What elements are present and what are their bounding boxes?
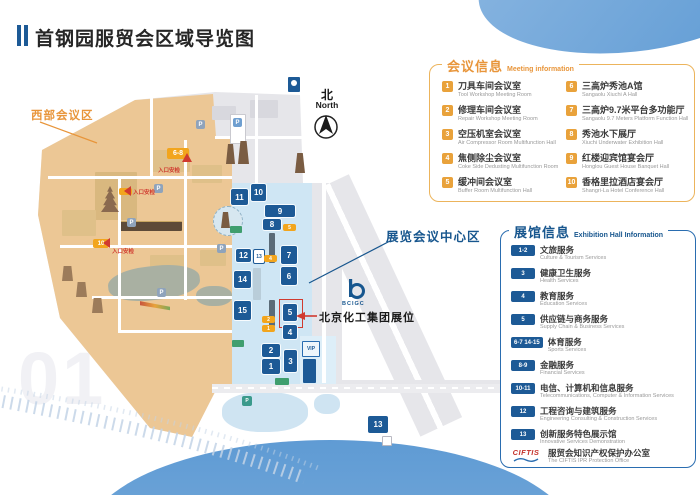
hall-3: 3 <box>284 350 297 372</box>
hall-1: 1 <box>262 359 280 374</box>
west-area-label: 西部会议区 <box>31 107 94 123</box>
meeting-item-cn: 刀具车间会议室 <box>458 81 532 92</box>
map-road <box>215 136 303 139</box>
meeting-item-cn: 三高炉9.7米平台多功能厅 <box>582 105 688 116</box>
page: 01 首钢园服贸会区域导览图 11 10 9 8 7 6 12 13 14 <box>0 0 700 495</box>
parking-icon: P <box>217 244 226 253</box>
north-label-en: North <box>310 100 344 110</box>
building-block <box>62 210 96 236</box>
meeting-item-en: Sangaolu 9.7 Meters Platform Function Ha… <box>582 116 688 123</box>
hall-info-en: Education Services <box>540 301 587 308</box>
green-chip <box>232 340 244 347</box>
hall-info-item: 12 工程咨询与建筑服务 Engineering Consulting & Co… <box>511 406 657 423</box>
south-pond <box>222 392 308 432</box>
meeting-item: 1 刀具车间会议室 Tool Workshop Meeting Room <box>442 81 532 99</box>
meeting-item-number: 3 <box>442 129 453 140</box>
hall-info-number: 1-2 <box>511 245 535 256</box>
entrance-check-label: 入口安检 <box>112 247 134 255</box>
south-pond-small <box>314 394 340 414</box>
meeting-item: 10 香格里拉酒店宴会厅 Shangri-La Hotel Conference… <box>566 177 664 195</box>
meeting-item-en: Xiuchi Underwater Exhibition Hall <box>582 140 663 147</box>
gate-chip-10: 10 <box>93 239 109 248</box>
meeting-item-number: 6 <box>566 81 577 92</box>
hall-2: 2 <box>262 344 280 357</box>
hall-info-item: 10-11 电信、计算机和信息服务 Telecommunications, Co… <box>511 383 674 400</box>
main-road <box>212 384 514 393</box>
map-road <box>322 183 326 383</box>
hall-info-en: Financial Services <box>540 370 585 377</box>
meeting-item-cn: 三高炉秀池A馆 <box>582 81 643 92</box>
hall-info-title: 展馆信息 Exhibition Hall Information <box>509 222 668 241</box>
hall-info-number: 10-11 <box>511 383 535 394</box>
meeting-item: 3 空压机室会议室 Air Compressor Room Multifunct… <box>442 129 556 147</box>
hall-info-cn: 供应链与商务服务 <box>540 314 624 324</box>
map-road <box>118 330 232 333</box>
title-bar-icon <box>17 25 21 46</box>
building-block <box>192 165 222 183</box>
hall-info-item: 8-9 金融服务 Financial Services <box>511 360 585 377</box>
bcigc-logo-text: BCIGC <box>342 301 365 307</box>
parking-icon: P <box>154 184 163 193</box>
meeting-item-en: Honglou Guest House Banquet Hall <box>582 164 669 171</box>
center-area-label: 展览会议中心区 <box>386 226 481 245</box>
cooling-tower-icon <box>92 298 103 313</box>
hall-info-en: Sports Services <box>548 347 587 354</box>
building-block <box>382 436 392 446</box>
meeting-item-number: 8 <box>566 129 577 140</box>
hall-info-en: Telecommunications, Computer & Informati… <box>540 393 674 400</box>
hall-info-number: 6-7 14-15 <box>511 337 543 348</box>
hall-info-en: Innovative Services Demonstration <box>540 439 625 446</box>
green-chip <box>275 378 289 385</box>
hall-13-standalone: 13 <box>368 416 388 433</box>
hall-7: 7 <box>281 246 297 264</box>
meeting-item-cn: 香格里拉酒店宴会厅 <box>582 177 664 188</box>
gate-chip-5: 5 <box>283 224 296 231</box>
hall-12: 12 <box>236 249 251 262</box>
gate-chip-4: 4 <box>264 255 277 262</box>
parking-icon: P <box>196 120 205 129</box>
hall-info-en: Engineering Consulting & Construction Se… <box>540 416 657 423</box>
green-chip <box>230 226 242 233</box>
hall-info-item: 5 供应链与商务服务 Supply Chain & Business Servi… <box>511 314 624 331</box>
hall-info-cn: 体育服务 <box>548 337 587 347</box>
hall-info-en: Health Services <box>540 278 591 285</box>
map-road <box>184 140 187 300</box>
meeting-item: 4 焦侧除尘会议室 Coke Side Dedusting Multifunct… <box>442 153 558 171</box>
meeting-info-panel: 会议信息 Meeting information 1 刀具车间会议室 Tool … <box>429 64 695 202</box>
hall-info-title-cn: 展馆信息 <box>514 222 570 241</box>
hall-info-en: Supply Chain & Business Services <box>540 324 624 331</box>
meeting-item-number: 2 <box>442 105 453 116</box>
meeting-item-number: 5 <box>442 177 453 188</box>
map-road <box>150 98 153 178</box>
ciftis-en: The CIFTIS IPR Protection Office <box>548 458 650 465</box>
cooling-tower-icon <box>62 266 73 281</box>
meeting-item-number: 10 <box>566 177 577 188</box>
hall-info-number: 13 <box>511 429 535 440</box>
hall-8: 8 <box>263 219 281 230</box>
meeting-info-title: 会议信息 Meeting information <box>442 56 579 75</box>
meeting-item-cn: 修理车间会议室 <box>458 105 538 116</box>
hall-info-number: 3 <box>511 268 535 279</box>
hall-info-cn: 文旅服务 <box>540 245 606 255</box>
compass-icon <box>315 116 337 138</box>
map-road <box>48 176 232 179</box>
hall-15: 15 <box>234 301 251 320</box>
meeting-item-number: 1 <box>442 81 453 92</box>
hall-info-number: 5 <box>511 314 535 325</box>
hall-10: 10 <box>251 184 266 201</box>
shougang-logo-badge <box>288 77 300 92</box>
hall-info-item: 1-2 文旅服务 Culture & Tourism Services <box>511 245 606 262</box>
meeting-item-number: 4 <box>442 153 453 164</box>
meeting-item-cn: 缓冲间会议室 <box>458 177 532 188</box>
service-icon-box <box>303 359 316 383</box>
entrance-check-label: 入口安检 <box>158 166 180 174</box>
ciftis-logo-text: CIFTIS <box>513 448 540 457</box>
hall-info-number: 4 <box>511 291 535 302</box>
meeting-info-title-en: Meeting information <box>507 66 574 73</box>
gate-chip-1: 1 <box>262 325 275 332</box>
map-road <box>60 245 232 248</box>
meeting-item-en: Shangri-La Hotel Conference Hall <box>582 188 664 195</box>
hall-info-item: 3 健康卫生服务 Health Services <box>511 268 591 285</box>
hall-14: 14 <box>234 271 251 288</box>
cooling-tower-icon <box>76 282 87 297</box>
meeting-item-en: Tool Workshop Meeting Room <box>458 92 532 99</box>
hall-info-cn: 教育服务 <box>540 291 587 301</box>
gate-chip-6-8: 6-8 <box>167 148 189 159</box>
building-block <box>253 268 261 300</box>
meeting-item: 6 三高炉秀池A馆 Sangaolu Xiuchi A Hall <box>566 81 643 99</box>
meeting-item-cn: 红楼迎宾馆宴会厅 <box>582 153 669 164</box>
parking-icon-teal: P <box>242 396 252 406</box>
hall-info-item: 6-7 14-15 体育服务 Sports Services <box>511 337 586 354</box>
meeting-item-number: 9 <box>566 153 577 164</box>
hall-info-cn: 金融服务 <box>540 360 585 370</box>
meeting-item-en: Air Compressor Room Multifunction Hall <box>458 140 556 147</box>
hall-info-item: 13 创新服务特色展示馆 Innovative Services Demonst… <box>511 429 625 446</box>
hall-info-cn: 创新服务特色展示馆 <box>540 429 625 439</box>
meeting-item-cn: 秀池水下展厅 <box>582 129 663 140</box>
hall-info-number: 8-9 <box>511 360 535 371</box>
hall-11: 11 <box>231 189 248 205</box>
parking-icon: P <box>233 118 242 127</box>
entrance-check-label: 入口安检 <box>133 188 155 196</box>
ciftis-cn: 服贸会知识产权保护办公室 <box>548 448 650 458</box>
ciftis-logo: CIFTIS <box>509 448 543 463</box>
hall-info-panel: 展馆信息 Exhibition Hall Information 1-2 文旅服… <box>500 230 696 468</box>
building-block <box>95 172 137 220</box>
parking-icon: P <box>157 288 166 297</box>
meeting-item-en: Sangaolu Xiuchi A Hall <box>582 92 643 99</box>
meeting-item-cn: 焦侧除尘会议室 <box>458 153 558 164</box>
hall-4: 4 <box>283 325 297 339</box>
ciftis-logo-wave-icon <box>513 457 539 463</box>
hall-info-cn: 电信、计算机和信息服务 <box>540 383 674 393</box>
ciftis-ipr-office-item: CIFTIS 服贸会知识产权保护办公室 The CIFTIS IPR Prote… <box>509 448 650 465</box>
compass-needle-icon <box>319 115 333 134</box>
title-bar-icon <box>24 25 28 46</box>
meeting-item: 5 缓冲间会议室 Buffer Room Multifunction Hall <box>442 177 532 195</box>
meeting-info-title-cn: 会议信息 <box>447 56 503 75</box>
hall-info-number: 12 <box>511 406 535 417</box>
hall-6: 6 <box>281 267 297 285</box>
hall-info-title-en: Exhibition Hall Information <box>574 232 663 239</box>
page-title: 首钢园服贸会区域导览图 <box>35 24 255 51</box>
hall-info-cn: 工程咨询与建筑服务 <box>540 406 657 416</box>
meeting-item: 9 红楼迎宾馆宴会厅 Honglou Guest House Banquet H… <box>566 153 669 171</box>
map-road <box>255 95 258 183</box>
hall-9: 9 <box>265 205 295 217</box>
meeting-item-cn: 空压机室会议室 <box>458 129 556 140</box>
hall-info-en: Culture & Tourism Services <box>540 255 606 262</box>
meeting-item-en: Repair Workshop Meeting Room <box>458 116 538 123</box>
meeting-item: 8 秀池水下展厅 Xiuchi Underwater Exhibition Ha… <box>566 129 663 147</box>
meeting-item: 7 三高炉9.7米平台多功能厅 Sangaolu 9.7 Meters Plat… <box>566 105 688 123</box>
vip-box: VIP <box>302 341 320 357</box>
hall-info-cn: 健康卫生服务 <box>540 268 591 278</box>
hall-info-item: 4 教育服务 Education Services <box>511 291 587 308</box>
booth-label: 北京化工集团展位 <box>319 309 415 325</box>
meeting-item-en: Coke Side Dedusting Multifunction Room <box>458 164 558 171</box>
parking-icon: P <box>127 218 136 227</box>
meeting-item-en: Buffer Room Multifunction Hall <box>458 188 532 195</box>
hall-5-highlight-box <box>279 299 303 328</box>
meeting-item: 2 修理车间会议室 Repair Workshop Meeting Room <box>442 105 538 123</box>
gate-chip <box>119 188 132 195</box>
gate-chip-2: 2 <box>262 316 275 323</box>
meeting-item-number: 7 <box>566 105 577 116</box>
